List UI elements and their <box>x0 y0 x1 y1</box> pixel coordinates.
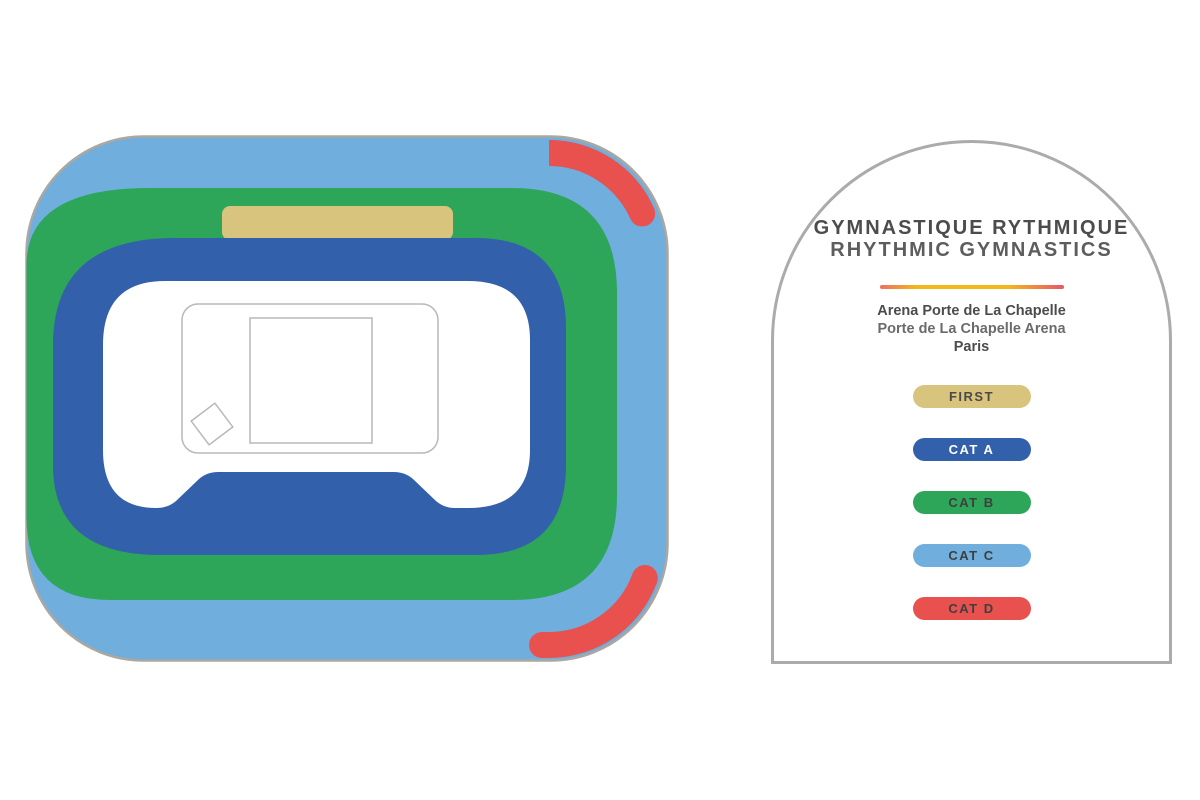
venue-name-en: Porte de La Chapelle Arena <box>774 320 1169 338</box>
tier-first <box>222 206 453 240</box>
accent-divider <box>880 285 1064 289</box>
category-badge-cat-d: CAT D <box>913 597 1031 620</box>
venue-map-page: GYMNASTIQUE RYTHMIQUE RHYTHMIC GYMNASTIC… <box>0 0 1200 800</box>
category-badge-cat-a: CAT A <box>913 438 1031 461</box>
event-title-fr: GYMNASTIQUE RYTHMIQUE <box>774 217 1169 239</box>
category-badge-cat-b: CAT B <box>913 491 1031 514</box>
venue-city: Paris <box>774 338 1169 356</box>
venue-name-fr: Arena Porte de La Chapelle <box>774 302 1169 320</box>
category-badge-cat-c: CAT C <box>913 544 1031 567</box>
event-title-en: RHYTHMIC GYMNASTICS <box>774 239 1169 261</box>
category-badge-first: FIRST <box>913 385 1031 408</box>
legend-card: GYMNASTIQUE RYTHMIQUE RHYTHMIC GYMNASTIC… <box>771 140 1172 664</box>
category-legend: FIRST CAT A CAT B CAT C CAT D <box>774 385 1169 620</box>
arena-seat-map <box>25 135 669 663</box>
